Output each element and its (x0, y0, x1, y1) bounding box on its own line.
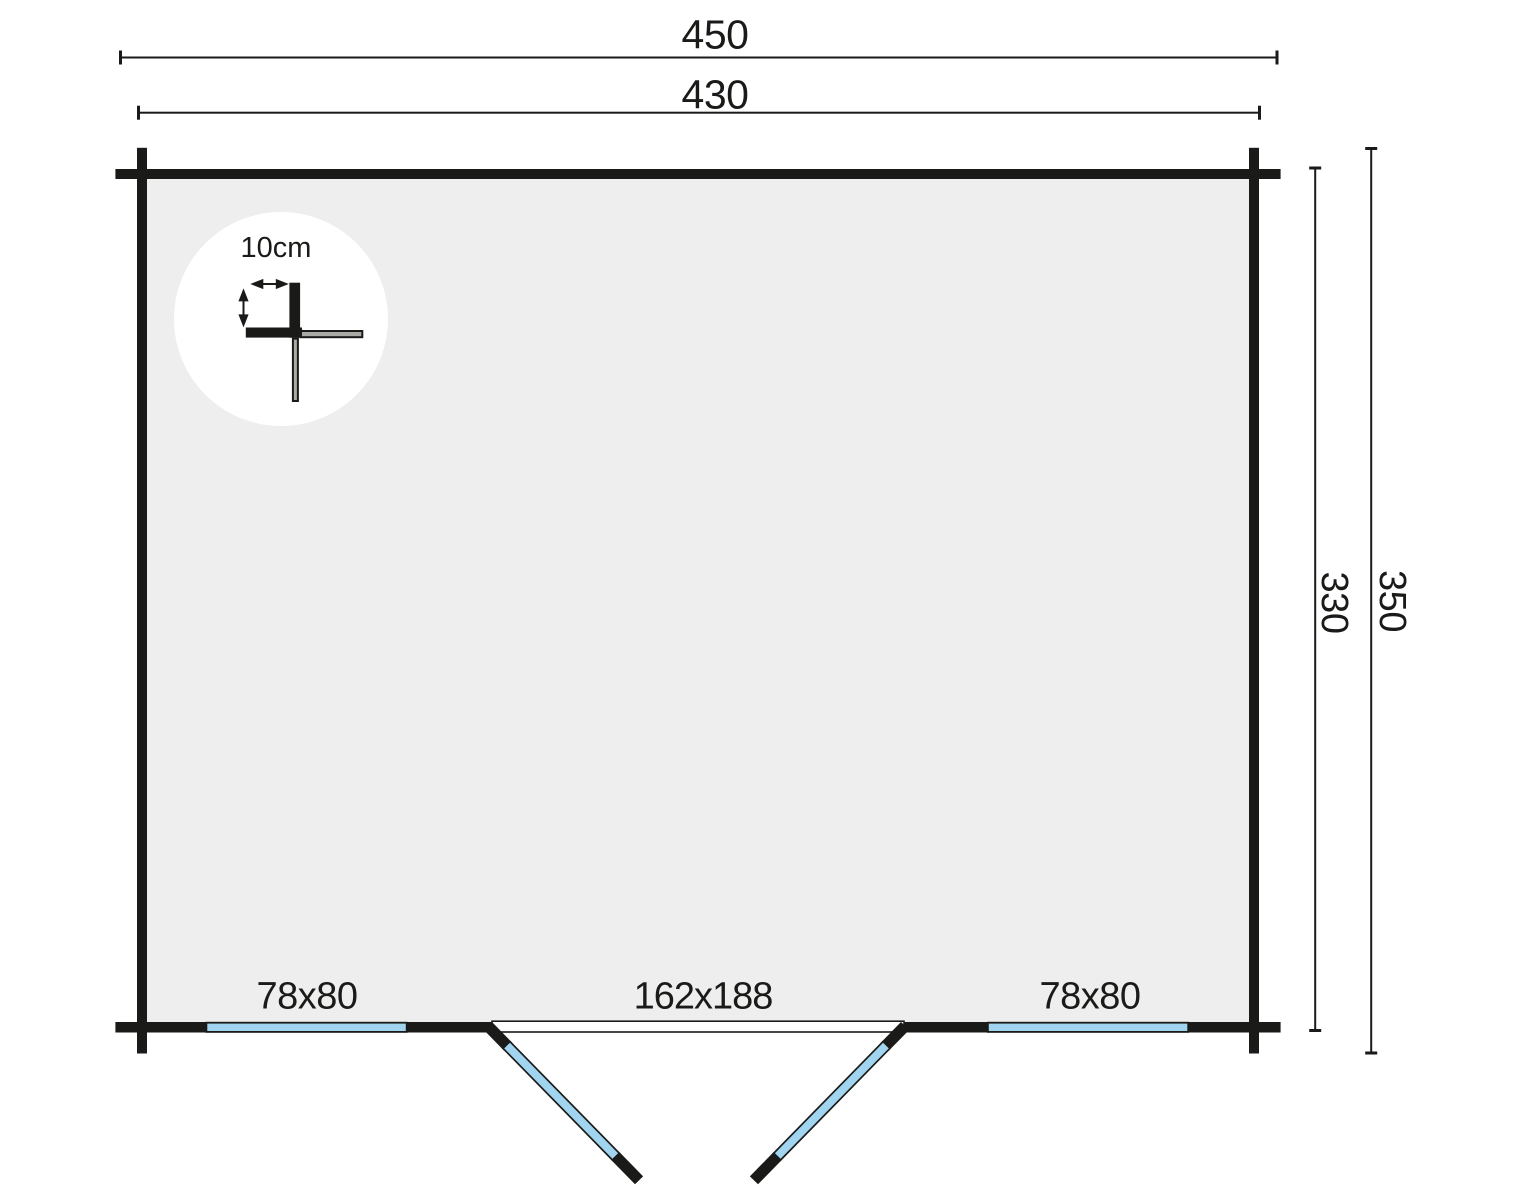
svg-text:430: 430 (682, 72, 749, 118)
svg-text:78x80: 78x80 (1039, 976, 1140, 1018)
svg-text:162x188: 162x188 (634, 976, 773, 1018)
svg-text:450: 450 (682, 12, 749, 58)
svg-text:78x80: 78x80 (256, 976, 357, 1018)
svg-text:10cm: 10cm (241, 232, 312, 264)
svg-text:330: 330 (1313, 572, 1355, 634)
svg-text:350: 350 (1371, 570, 1413, 632)
